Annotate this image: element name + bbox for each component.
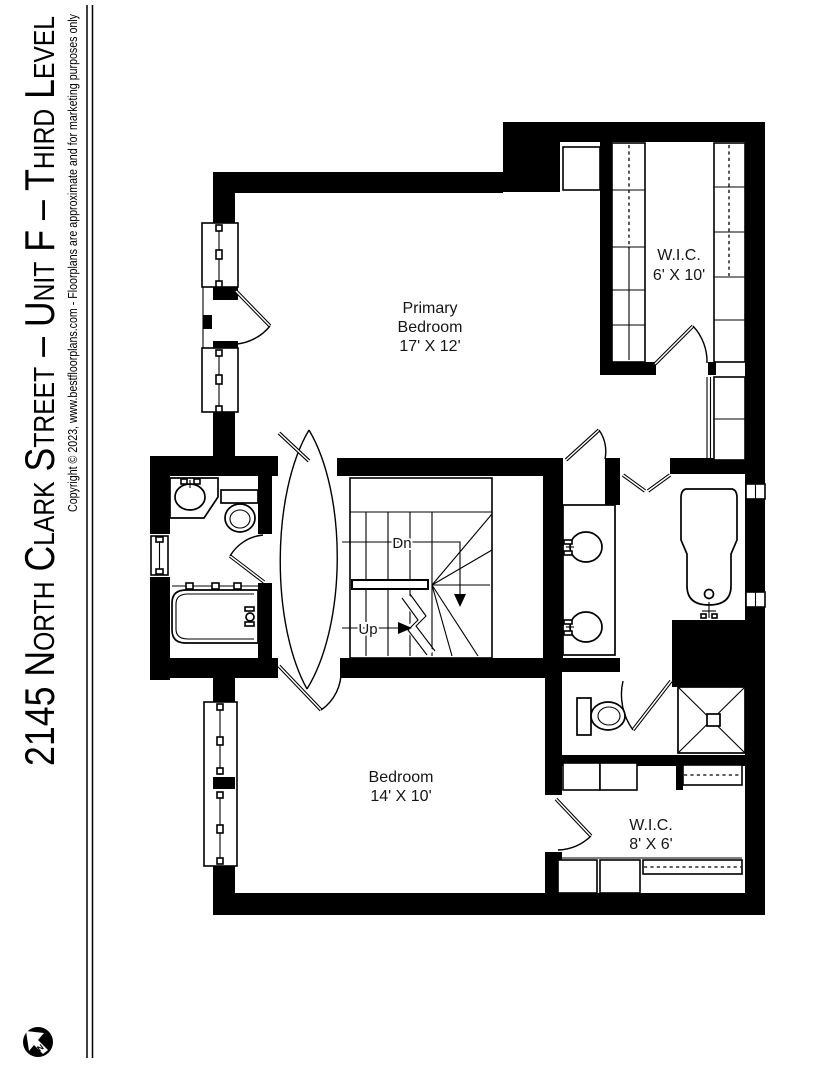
toilet-room-door xyxy=(621,681,671,730)
wic-upper-door xyxy=(655,326,707,364)
svg-text:17' X 12': 17' X 12' xyxy=(399,338,460,355)
stairs: Dn Up xyxy=(342,478,492,658)
freestanding-tub-icon xyxy=(681,489,737,618)
wic-upper-label: W.I.C. 6' X 10' xyxy=(653,247,705,284)
wic-lower-shelves-bottom xyxy=(558,858,742,893)
bedroom-label: Bedroom 14' X 10' xyxy=(369,769,434,805)
wic-lower-door xyxy=(556,799,591,850)
bathroom-window xyxy=(147,534,173,577)
hall-linen-closet xyxy=(707,377,745,460)
bay-window-bedroom xyxy=(204,702,237,866)
vestibule-door-arcs xyxy=(279,430,337,689)
copyright-text: Copyright © 2023, www.bestfloorplans.com… xyxy=(66,13,80,512)
primary-bedroom-door xyxy=(566,430,606,460)
primary-bedroom-label: Primary Bedroom 17' X 12' xyxy=(398,300,463,355)
toilet2-icon xyxy=(577,698,625,735)
svg-text:Bedroom: Bedroom xyxy=(398,319,463,336)
svg-text:Primary: Primary xyxy=(402,300,457,317)
hall-bathroom xyxy=(170,478,258,643)
svg-text:Bedroom: Bedroom xyxy=(369,769,434,786)
stair-handrail xyxy=(352,580,428,589)
wic-lower-label: W.I.C. 8' X 6' xyxy=(629,817,673,853)
toilet-icon xyxy=(221,490,258,532)
bathtub-icon xyxy=(172,583,258,643)
svg-text:6' X 10': 6' X 10' xyxy=(653,267,705,284)
corner-cabinet xyxy=(563,147,600,190)
wic-upper-shelves-left xyxy=(612,143,645,362)
page-title: 2145 North Clark Street – Unit F – Third… xyxy=(16,16,63,766)
bathroom-door xyxy=(230,535,264,582)
svg-text:W.I.C.: W.I.C. xyxy=(657,247,701,264)
wic-lower-shelves-top xyxy=(563,763,742,790)
svg-text:14' X 10': 14' X 10' xyxy=(370,788,431,805)
corner-shower-icon xyxy=(678,687,745,753)
stairs-up-label: Up xyxy=(358,621,377,638)
svg-text:W.I.C.: W.I.C. xyxy=(629,817,673,834)
bedroom-door xyxy=(279,666,341,710)
sidebar: 2145 North Clark Street – Unit F – Third… xyxy=(16,5,93,1058)
double-vanity xyxy=(563,505,615,655)
svg-text:8' X 6': 8' X 6' xyxy=(629,836,672,853)
north-arrow-icon: N xyxy=(23,1027,53,1057)
primary-balcony-door xyxy=(236,291,270,344)
primary-bath-double-doors xyxy=(623,475,670,491)
floor-plan-page: 2145 North Clark Street – Unit F – Third… xyxy=(0,0,835,1080)
wic-upper-shelves-right xyxy=(714,143,745,362)
stairs-down-label: Dn xyxy=(392,535,411,552)
bay-window-primary xyxy=(202,223,238,412)
